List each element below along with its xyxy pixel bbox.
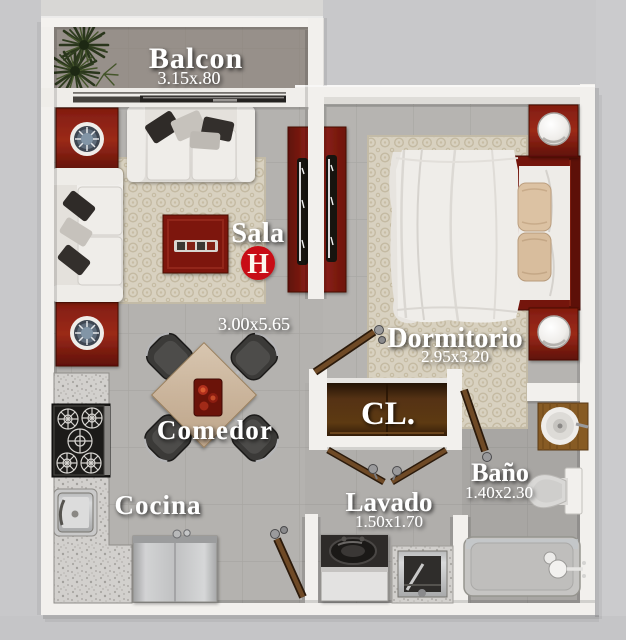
svg-text:1.40x2.30: 1.40x2.30 (465, 483, 533, 502)
svg-text:3.00x5.65: 3.00x5.65 (218, 314, 290, 334)
svg-text:3.15x.80: 3.15x.80 (158, 68, 221, 88)
svg-text:CL.: CL. (361, 396, 415, 432)
svg-text:Sala: Sala (231, 218, 284, 249)
svg-text:2.95x3.20: 2.95x3.20 (421, 347, 489, 366)
svg-text:1.50x1.70: 1.50x1.70 (355, 512, 423, 531)
svg-text:Comedor: Comedor (157, 415, 273, 445)
svg-text:Cocina: Cocina (115, 490, 202, 520)
svg-text:H: H (247, 249, 269, 280)
